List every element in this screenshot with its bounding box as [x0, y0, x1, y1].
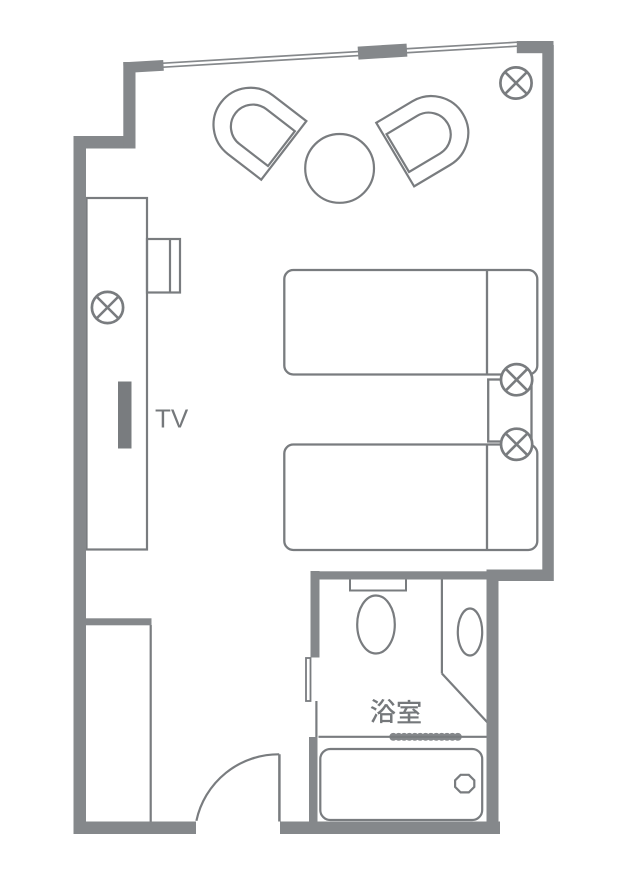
- svg-text:TV: TV: [155, 404, 189, 434]
